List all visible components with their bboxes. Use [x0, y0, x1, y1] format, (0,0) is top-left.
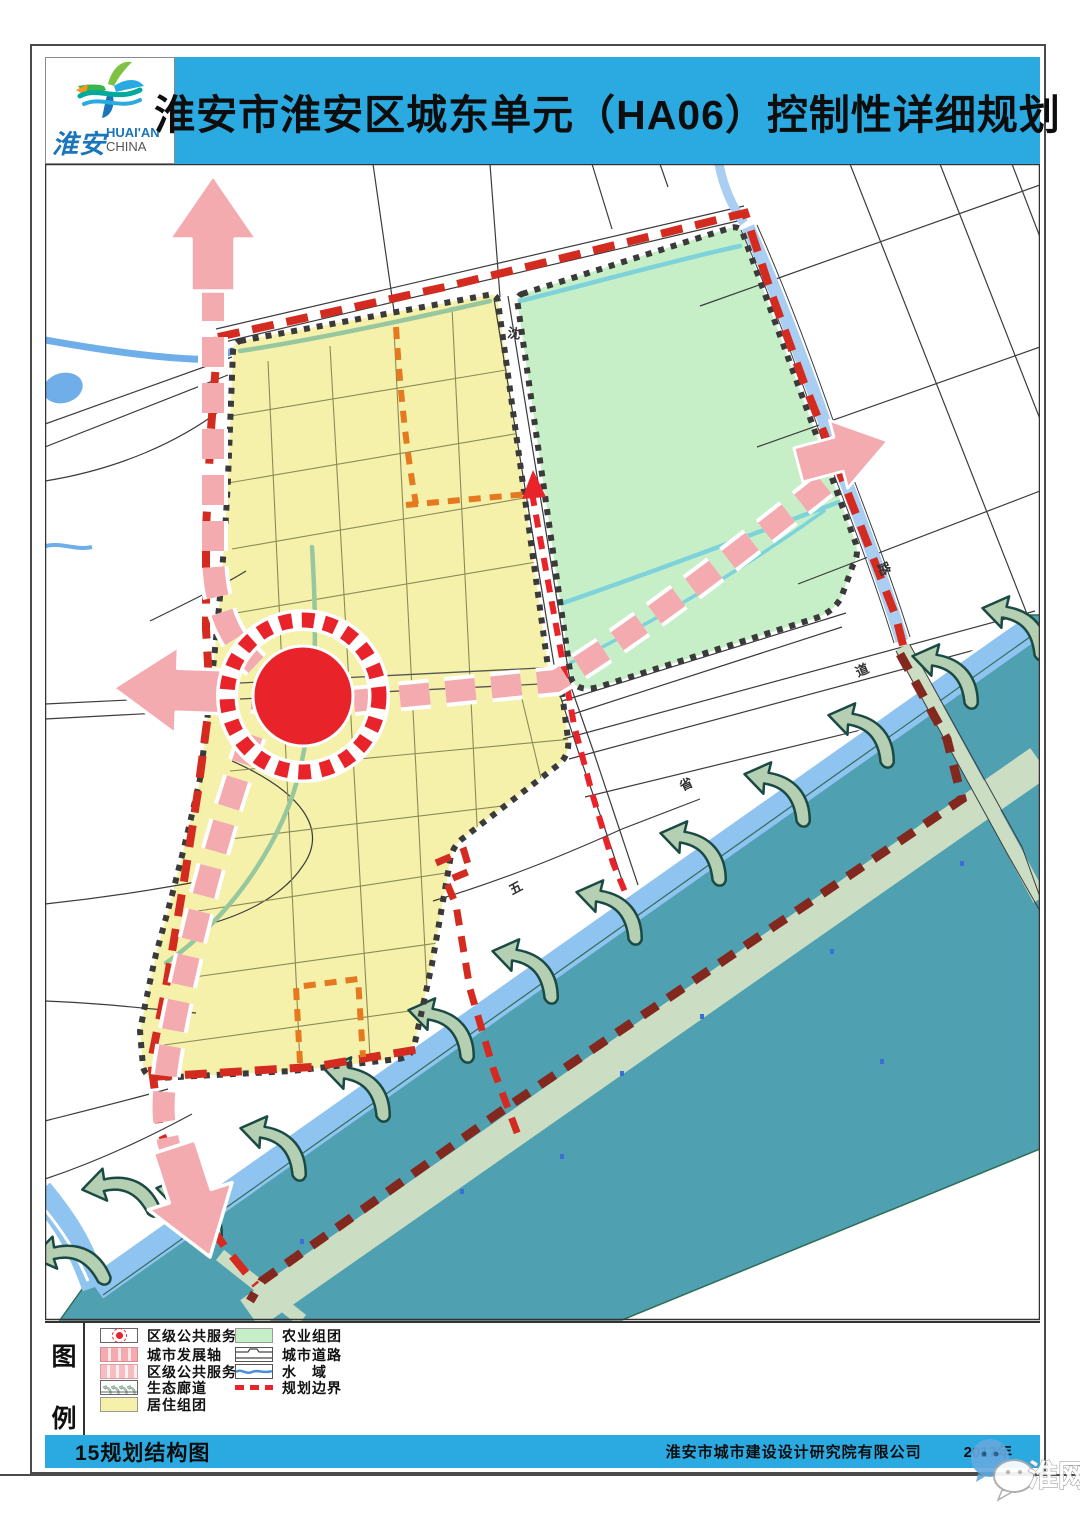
logo-en-text: HUAI'AN CHINA [106, 126, 160, 154]
legend-item-boundary: 规划边界 [235, 1379, 342, 1396]
residential-icon [100, 1397, 138, 1412]
city-road-icon [235, 1347, 273, 1362]
legend-title: 图 例 [45, 1323, 85, 1437]
huaiwang-watermark: 淮网 [966, 1438, 1080, 1520]
legend-item-eco-corridor: 生态廊道 [100, 1379, 207, 1396]
service-center-icon [100, 1328, 138, 1343]
planning-boundary-icon [235, 1380, 273, 1395]
footer-bar: 15规划结构图 淮安市城市建设设计研究院有限公司 2017年 [45, 1435, 1040, 1468]
svg-text:沈: 沈 [507, 325, 522, 342]
wechat-bubbles-icon [971, 1439, 1034, 1500]
service-axis-icon [100, 1364, 138, 1379]
title-bar: 淮安市淮安区城东单元（HA06）控制性详细规划 [175, 57, 1040, 164]
legend-panel: 图 例 区级公共服务中心 城市发展轴 区级公共服务轴 [45, 1321, 1040, 1435]
company-label: 淮安市城市建设设计研究院有限公司 [666, 1441, 922, 1462]
eco-corridor-icon [100, 1380, 138, 1395]
legend-item-city-road: 城市道路 [235, 1346, 342, 1363]
water-area-icon [235, 1364, 273, 1379]
page-title: 淮安市淮安区城东单元（HA06）控制性详细规划 [154, 81, 1061, 141]
legend-item-residential: 居住组团 [100, 1396, 207, 1413]
figure-number-label: 15规划结构图 [75, 1437, 210, 1467]
logo-cn-text: 淮安 [52, 124, 106, 161]
map-area: 沈 五 省 道 路 [45, 164, 1040, 1321]
watermark-text: 淮网 [1028, 1460, 1080, 1493]
agriculture-icon [235, 1328, 273, 1343]
legend-item-agriculture: 农业组团 [235, 1327, 342, 1344]
planning-map-svg: 沈 五 省 道 路 [45, 164, 1040, 1321]
legend-item-development-axis: 城市发展轴 [100, 1346, 222, 1363]
page-bottom-rule [0, 1474, 1080, 1476]
development-axis-icon [100, 1347, 138, 1362]
planning-map-page: 淮安 HUAI'AN CHINA 淮安市淮安区城东单元（HA06）控制性详细规划 [0, 0, 1080, 1526]
